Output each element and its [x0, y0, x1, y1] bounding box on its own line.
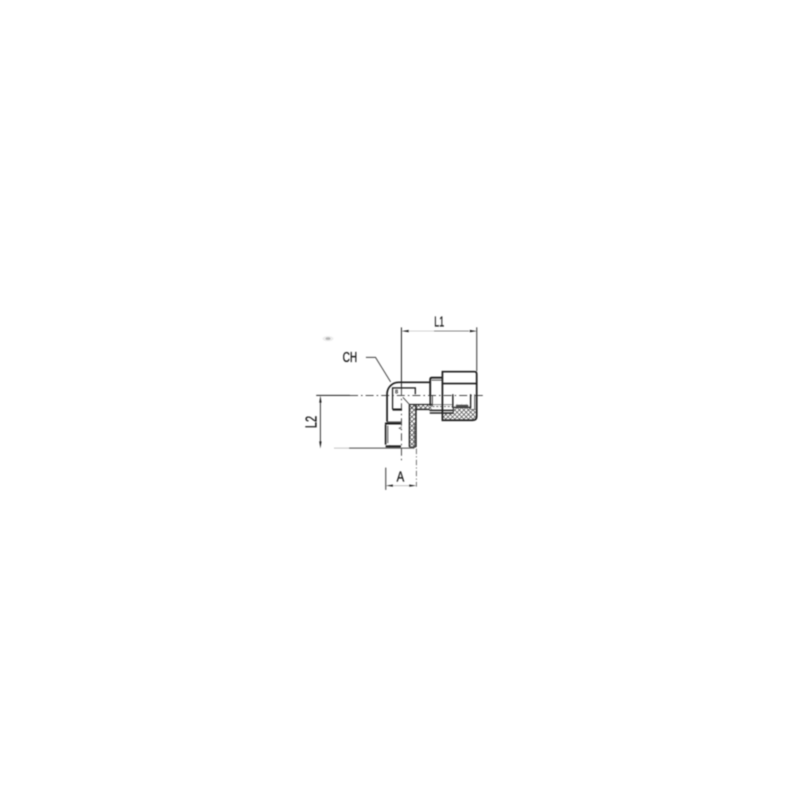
svg-text:L1: L1 — [434, 314, 444, 331]
svg-text:8: 8 — [395, 389, 398, 395]
svg-text:L2: L2 — [304, 416, 321, 428]
svg-text:CH: CH — [343, 349, 358, 366]
svg-text:A: A — [397, 468, 405, 485]
